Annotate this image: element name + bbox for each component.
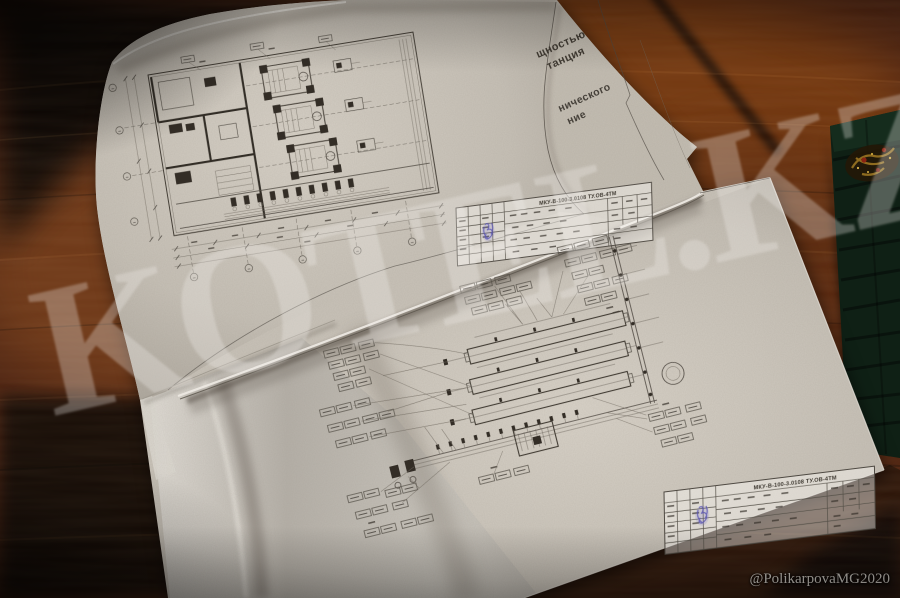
photo-scene: щностью танция нического ние МКУ-В-100-3… (0, 0, 900, 598)
photo-stage: щностью танция нического ние МКУ-В-100-3… (0, 0, 900, 598)
